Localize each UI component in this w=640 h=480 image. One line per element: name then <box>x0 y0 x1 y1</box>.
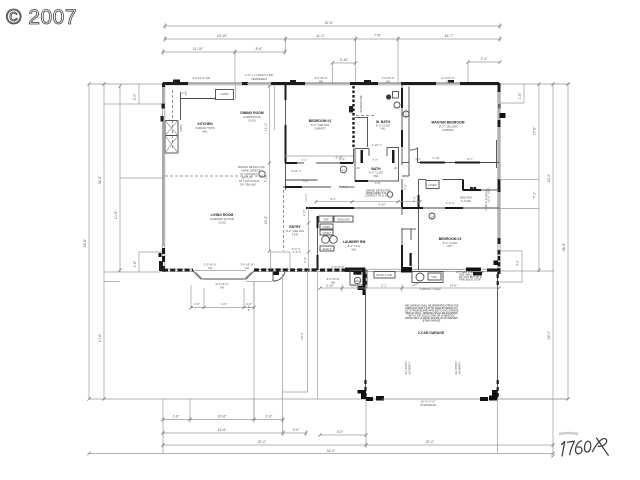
svg-text:7'-6": 7'-6" <box>374 34 382 38</box>
svg-text:4'-0"x3'-0" HD: 4'-0"x3'-0" HD <box>192 76 210 80</box>
svg-text:CLNG: CLNG <box>248 119 257 123</box>
svg-text:2'-0": 2'-0" <box>302 210 306 216</box>
svg-text:3'-0": 3'-0" <box>351 284 357 288</box>
svg-text:32'-6": 32'-6" <box>325 21 334 25</box>
svg-text:1'-6": 1'-6" <box>518 92 522 100</box>
svg-text:4'-0 WD: 4'-0 WD <box>461 199 471 203</box>
svg-text:TILE: TILE <box>292 233 298 237</box>
svg-text:WARDROBE: WARDROBE <box>359 95 363 113</box>
svg-text:10'-6": 10'-6" <box>98 333 102 342</box>
svg-text:11'-1": 11'-1" <box>316 34 325 38</box>
svg-text:2'-1": 2'-1" <box>381 284 387 288</box>
svg-text:14'-6": 14'-6" <box>450 284 457 288</box>
svg-text:SH: SH <box>208 266 212 270</box>
svg-text:7'-1": 7'-1" <box>533 191 537 199</box>
svg-text:VNL: VNL <box>380 127 386 131</box>
svg-text:FRIG: FRIG <box>179 124 183 132</box>
svg-text:11'-10": 11'-10" <box>193 47 204 51</box>
svg-text:11'-1": 11'-1" <box>264 122 268 131</box>
svg-text:9'-1": 9'-1" <box>330 197 336 201</box>
svg-text:7'-6": 7'-6" <box>413 196 417 202</box>
svg-text:VNL: VNL <box>351 248 357 252</box>
svg-text:7'-6": 7'-6" <box>404 184 408 190</box>
svg-text:VNL: VNL <box>202 130 208 134</box>
svg-text:2-CAR GARAGE: 2-CAR GARAGE <box>418 331 445 335</box>
svg-text:8'-4" V: 8'-4" V <box>339 185 348 189</box>
svg-text:© 2007: © 2007 <box>6 6 77 29</box>
svg-text:HB: HB <box>331 281 335 285</box>
svg-text:13'-6": 13'-6" <box>218 428 227 432</box>
svg-text:7'-1": 7'-1" <box>301 158 307 162</box>
svg-text:22'-0": 22'-0" <box>426 440 435 444</box>
svg-text:4'-6": 4'-6" <box>221 302 227 306</box>
svg-text:4'-6": 4'-6" <box>516 260 520 266</box>
svg-text:2'-4": 2'-4" <box>481 57 489 61</box>
svg-text:CARPET: CARPET <box>314 127 326 131</box>
svg-text:CARPET: CARPET <box>442 128 454 132</box>
svg-text:TAP: TAP <box>323 218 328 222</box>
svg-text:FIRE·BLKG STOP: FIRE·BLKG STOP <box>459 278 481 282</box>
svg-text:OVERHEAD: OVERHEAD <box>420 403 436 407</box>
svg-text:16'-7": 16'-7" <box>445 34 454 38</box>
svg-text:26'-0": 26'-0" <box>547 330 551 339</box>
svg-text:4'-10" V: 4'-10" V <box>291 169 301 173</box>
svg-text:3'-0": 3'-0" <box>293 428 301 432</box>
svg-text:3'-10": 3'-10" <box>340 58 349 62</box>
svg-text:8'-6": 8'-6" <box>256 47 264 51</box>
svg-text:3'-0" V: 3'-0" V <box>292 247 301 251</box>
svg-text:1'-6": 1'-6" <box>266 415 274 419</box>
svg-text:SHELVES: SHELVES <box>337 218 350 222</box>
svg-text:5'-8": 5'-8" <box>303 179 309 183</box>
svg-text:OPEN: OPEN <box>322 231 330 235</box>
svg-text:4'-10": 4'-10" <box>378 203 385 207</box>
svg-text:3'-0": 3'-0" <box>337 430 345 434</box>
svg-text:BTWN GARAGE: BTWN GARAGE <box>423 320 441 323</box>
svg-text:TRA: TRA <box>431 275 437 279</box>
svg-text:10'-6": 10'-6" <box>218 415 227 419</box>
svg-text:19'-10": 19'-10" <box>217 34 228 38</box>
svg-text:15'-2": 15'-2" <box>264 215 268 224</box>
svg-text:SH: SH <box>386 80 390 84</box>
svg-text:54'-6": 54'-6" <box>83 238 87 247</box>
svg-text:W/ BRKT: W/ BRKT <box>408 362 412 375</box>
svg-text:LINEN: LINEN <box>428 183 437 187</box>
svg-text:2'-0": 2'-0" <box>303 257 307 263</box>
svg-text:4'-1": 4'-1" <box>415 157 421 161</box>
svg-text:CONTACT AT CLG: CONTACT AT CLG <box>365 194 387 198</box>
svg-text:TEMPERED: TEMPERED <box>251 77 267 81</box>
svg-text:W/ BRKT: W/ BRKT <box>458 362 462 375</box>
svg-text:14: 14 <box>430 214 434 218</box>
svg-text:1'-6": 1'-6" <box>133 260 137 268</box>
svg-text:OF CEILING: OF CEILING <box>240 183 257 187</box>
svg-text:2'-10" V: 2'-10" V <box>371 143 381 147</box>
svg-text:CLNG: CLNG <box>218 221 227 225</box>
svg-text:3'-0": 3'-0" <box>133 93 137 101</box>
svg-text:30: 30 <box>394 166 398 170</box>
svg-text:10'-6": 10'-6" <box>300 332 304 340</box>
svg-text:1'-6": 1'-6" <box>173 415 181 419</box>
svg-text:30x30 F AIR: 30x30 F AIR <box>376 273 392 277</box>
svg-text:CABINET OVER: CABINET OVER <box>419 287 440 291</box>
svg-text:HD: HD <box>319 80 323 84</box>
svg-text:38'-6": 38'-6" <box>562 242 566 251</box>
svg-text:SHELF: SHELF <box>322 247 332 251</box>
svg-text:5'-0": 5'-0" <box>247 305 251 311</box>
svg-text:2'-0": 2'-0" <box>194 302 200 306</box>
svg-text:5'-8": 5'-8" <box>375 181 381 185</box>
svg-text:4'-10": 4'-10" <box>335 156 342 160</box>
svg-text:8'-7": 8'-7" <box>467 157 473 161</box>
svg-text:30: 30 <box>356 166 360 170</box>
svg-text:10'-6": 10'-6" <box>114 210 118 219</box>
svg-text:7'-7": 7'-7" <box>372 158 378 162</box>
svg-text:VNL: VNL <box>373 174 379 178</box>
svg-text:OVEN: OVEN <box>220 92 228 96</box>
svg-text:SH: SH <box>245 266 249 270</box>
svg-text:15'-6": 15'-6" <box>533 126 537 135</box>
svg-text:22'-0": 22'-0" <box>258 440 267 444</box>
svg-text:SHELF & POLE: SHELF & POLE <box>484 189 488 210</box>
svg-text:WH: WH <box>355 279 360 283</box>
svg-text:4'-0"x6'-8": 4'-0"x6'-8" <box>332 265 345 269</box>
svg-text:SH: SH <box>446 80 450 84</box>
svg-text:7'-10": 7'-10" <box>432 156 439 160</box>
svg-text:FB: FB <box>220 286 224 290</box>
svg-text:2'-4" V: 2'-4" V <box>446 201 455 205</box>
svg-text:OPEN: OPEN <box>322 225 330 229</box>
svg-text:34'-6": 34'-6" <box>98 175 102 184</box>
svg-text:17: 17 <box>342 168 346 172</box>
svg-text:32'-0": 32'-0" <box>327 449 336 453</box>
svg-text:CPT: CPT <box>447 244 453 248</box>
svg-text:23'-2": 23'-2" <box>547 173 551 182</box>
